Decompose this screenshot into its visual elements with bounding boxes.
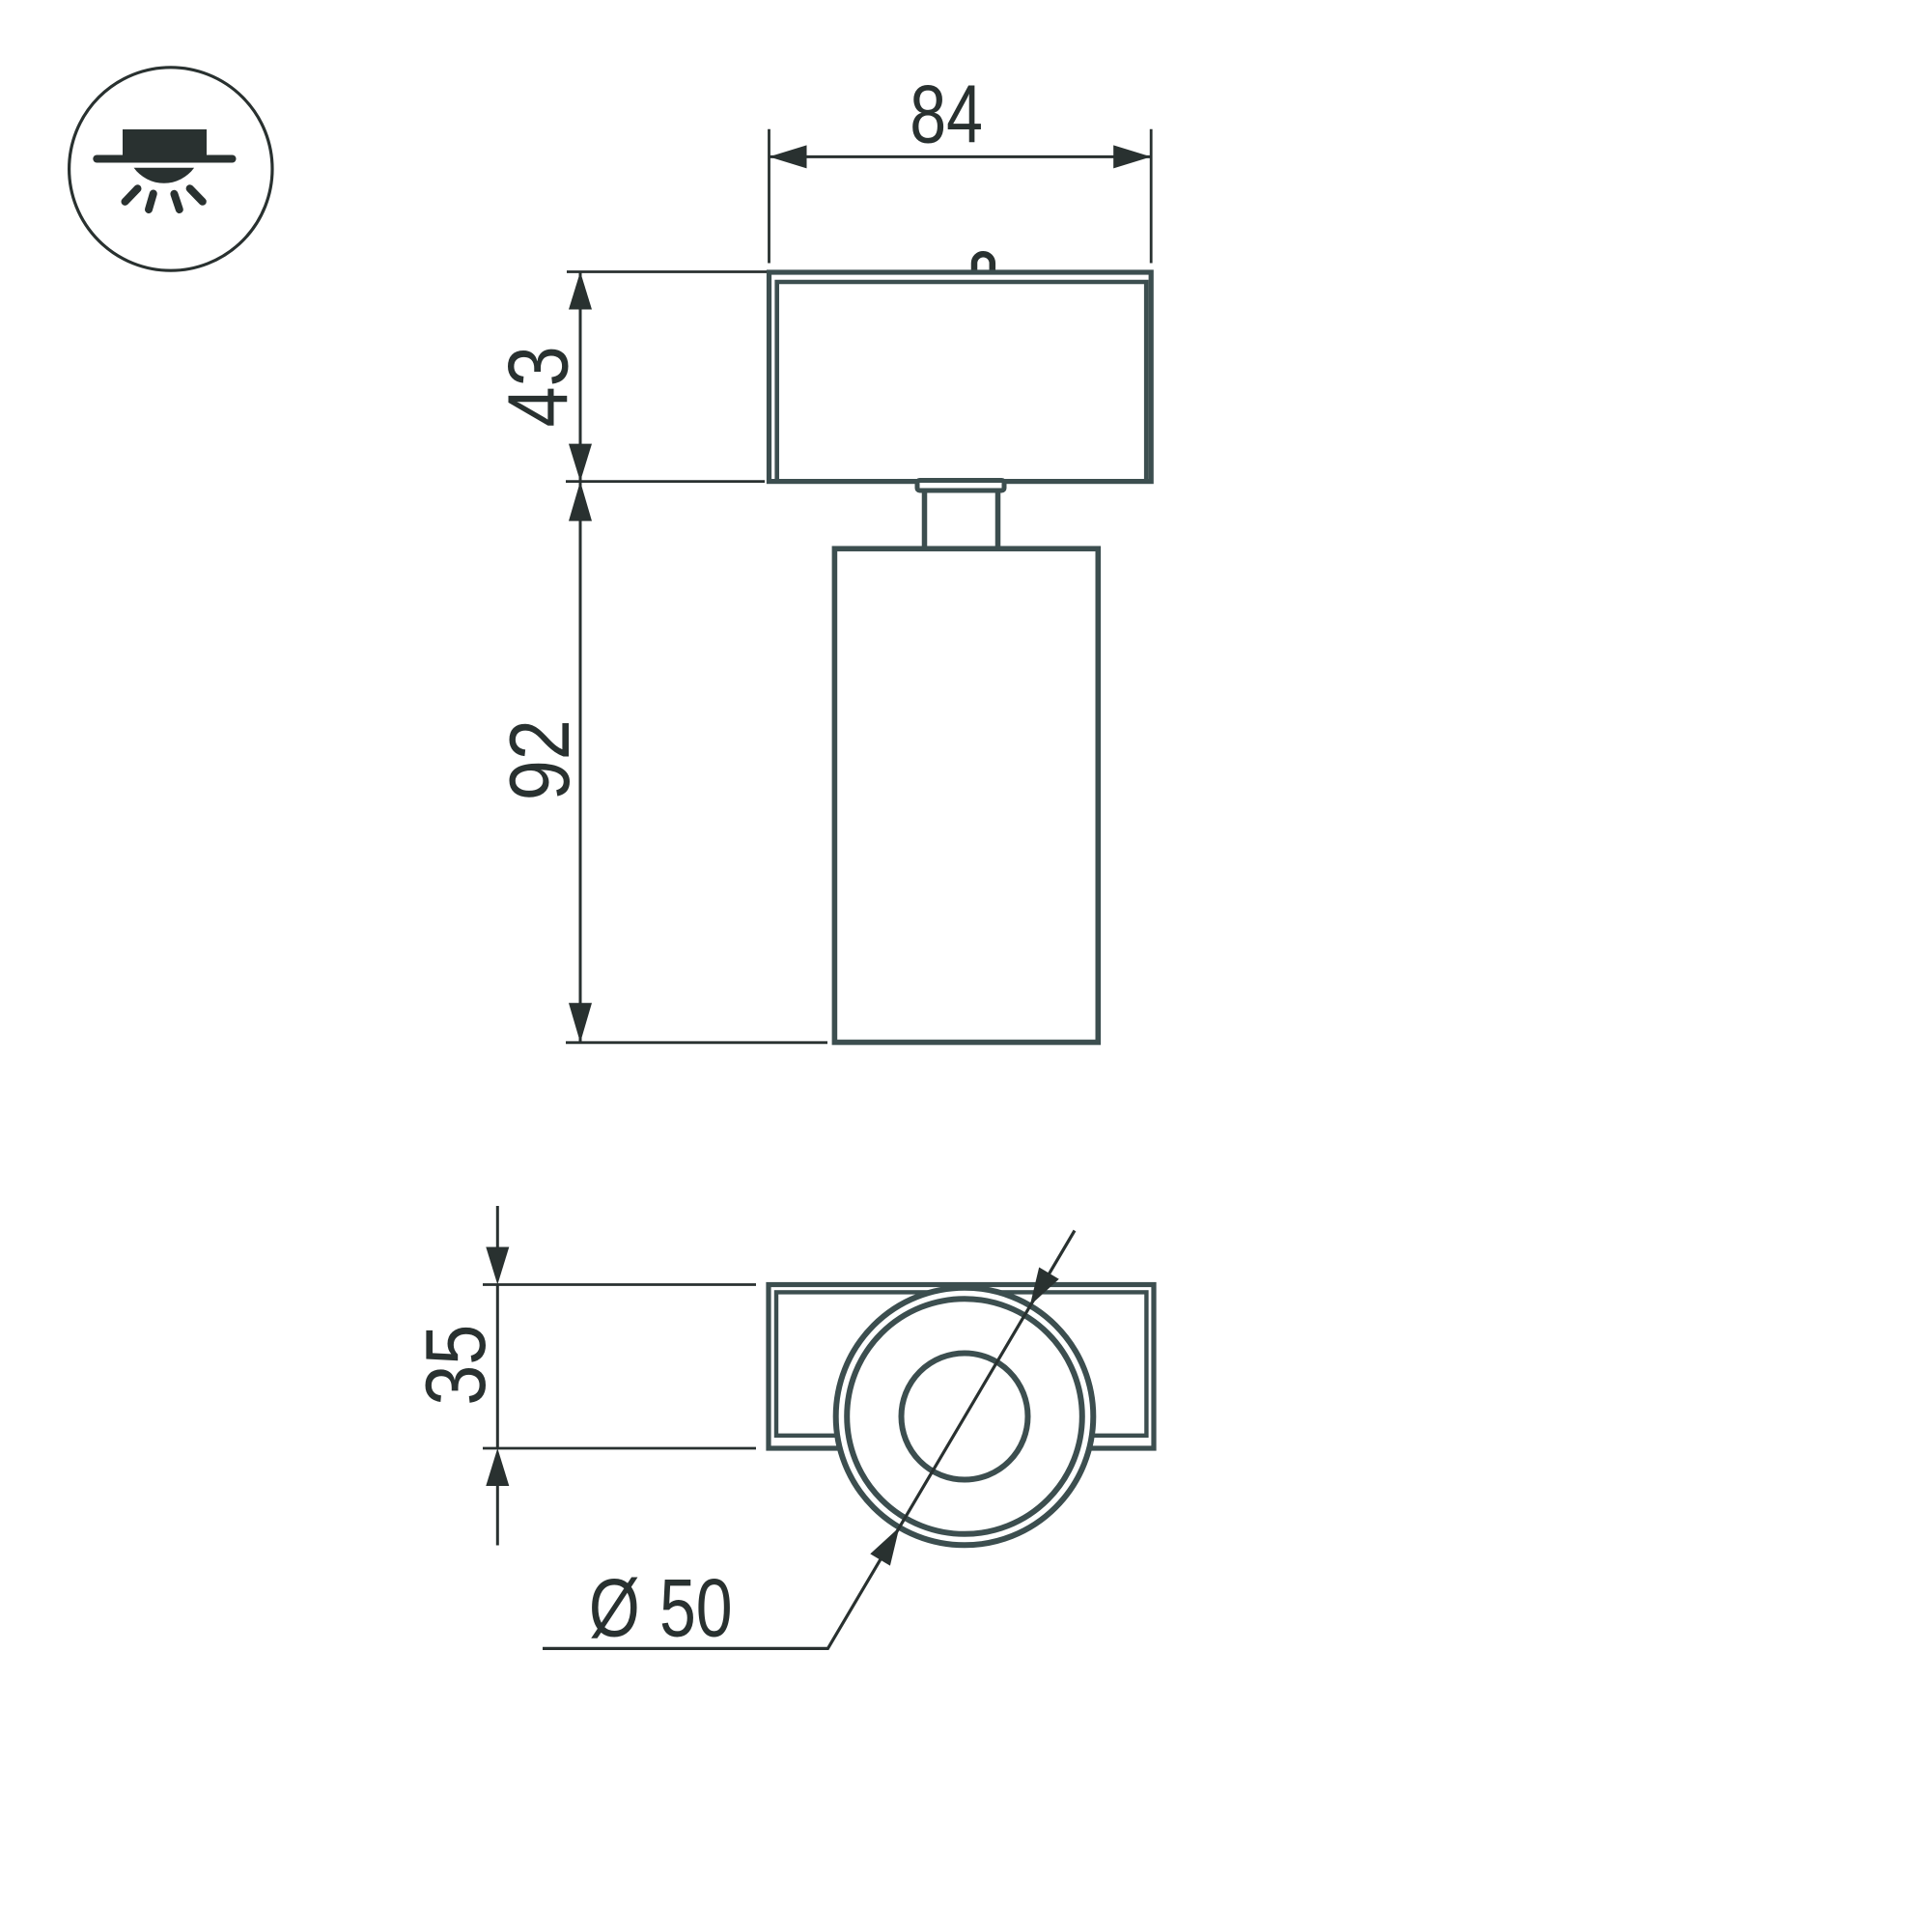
svg-text:84: 84 xyxy=(910,69,983,160)
svg-text:35: 35 xyxy=(409,1325,504,1406)
svg-text:92: 92 xyxy=(493,719,588,800)
svg-text:50: 50 xyxy=(659,1562,733,1654)
svg-text:Ø: Ø xyxy=(589,1562,640,1654)
svg-text:43: 43 xyxy=(491,346,586,427)
